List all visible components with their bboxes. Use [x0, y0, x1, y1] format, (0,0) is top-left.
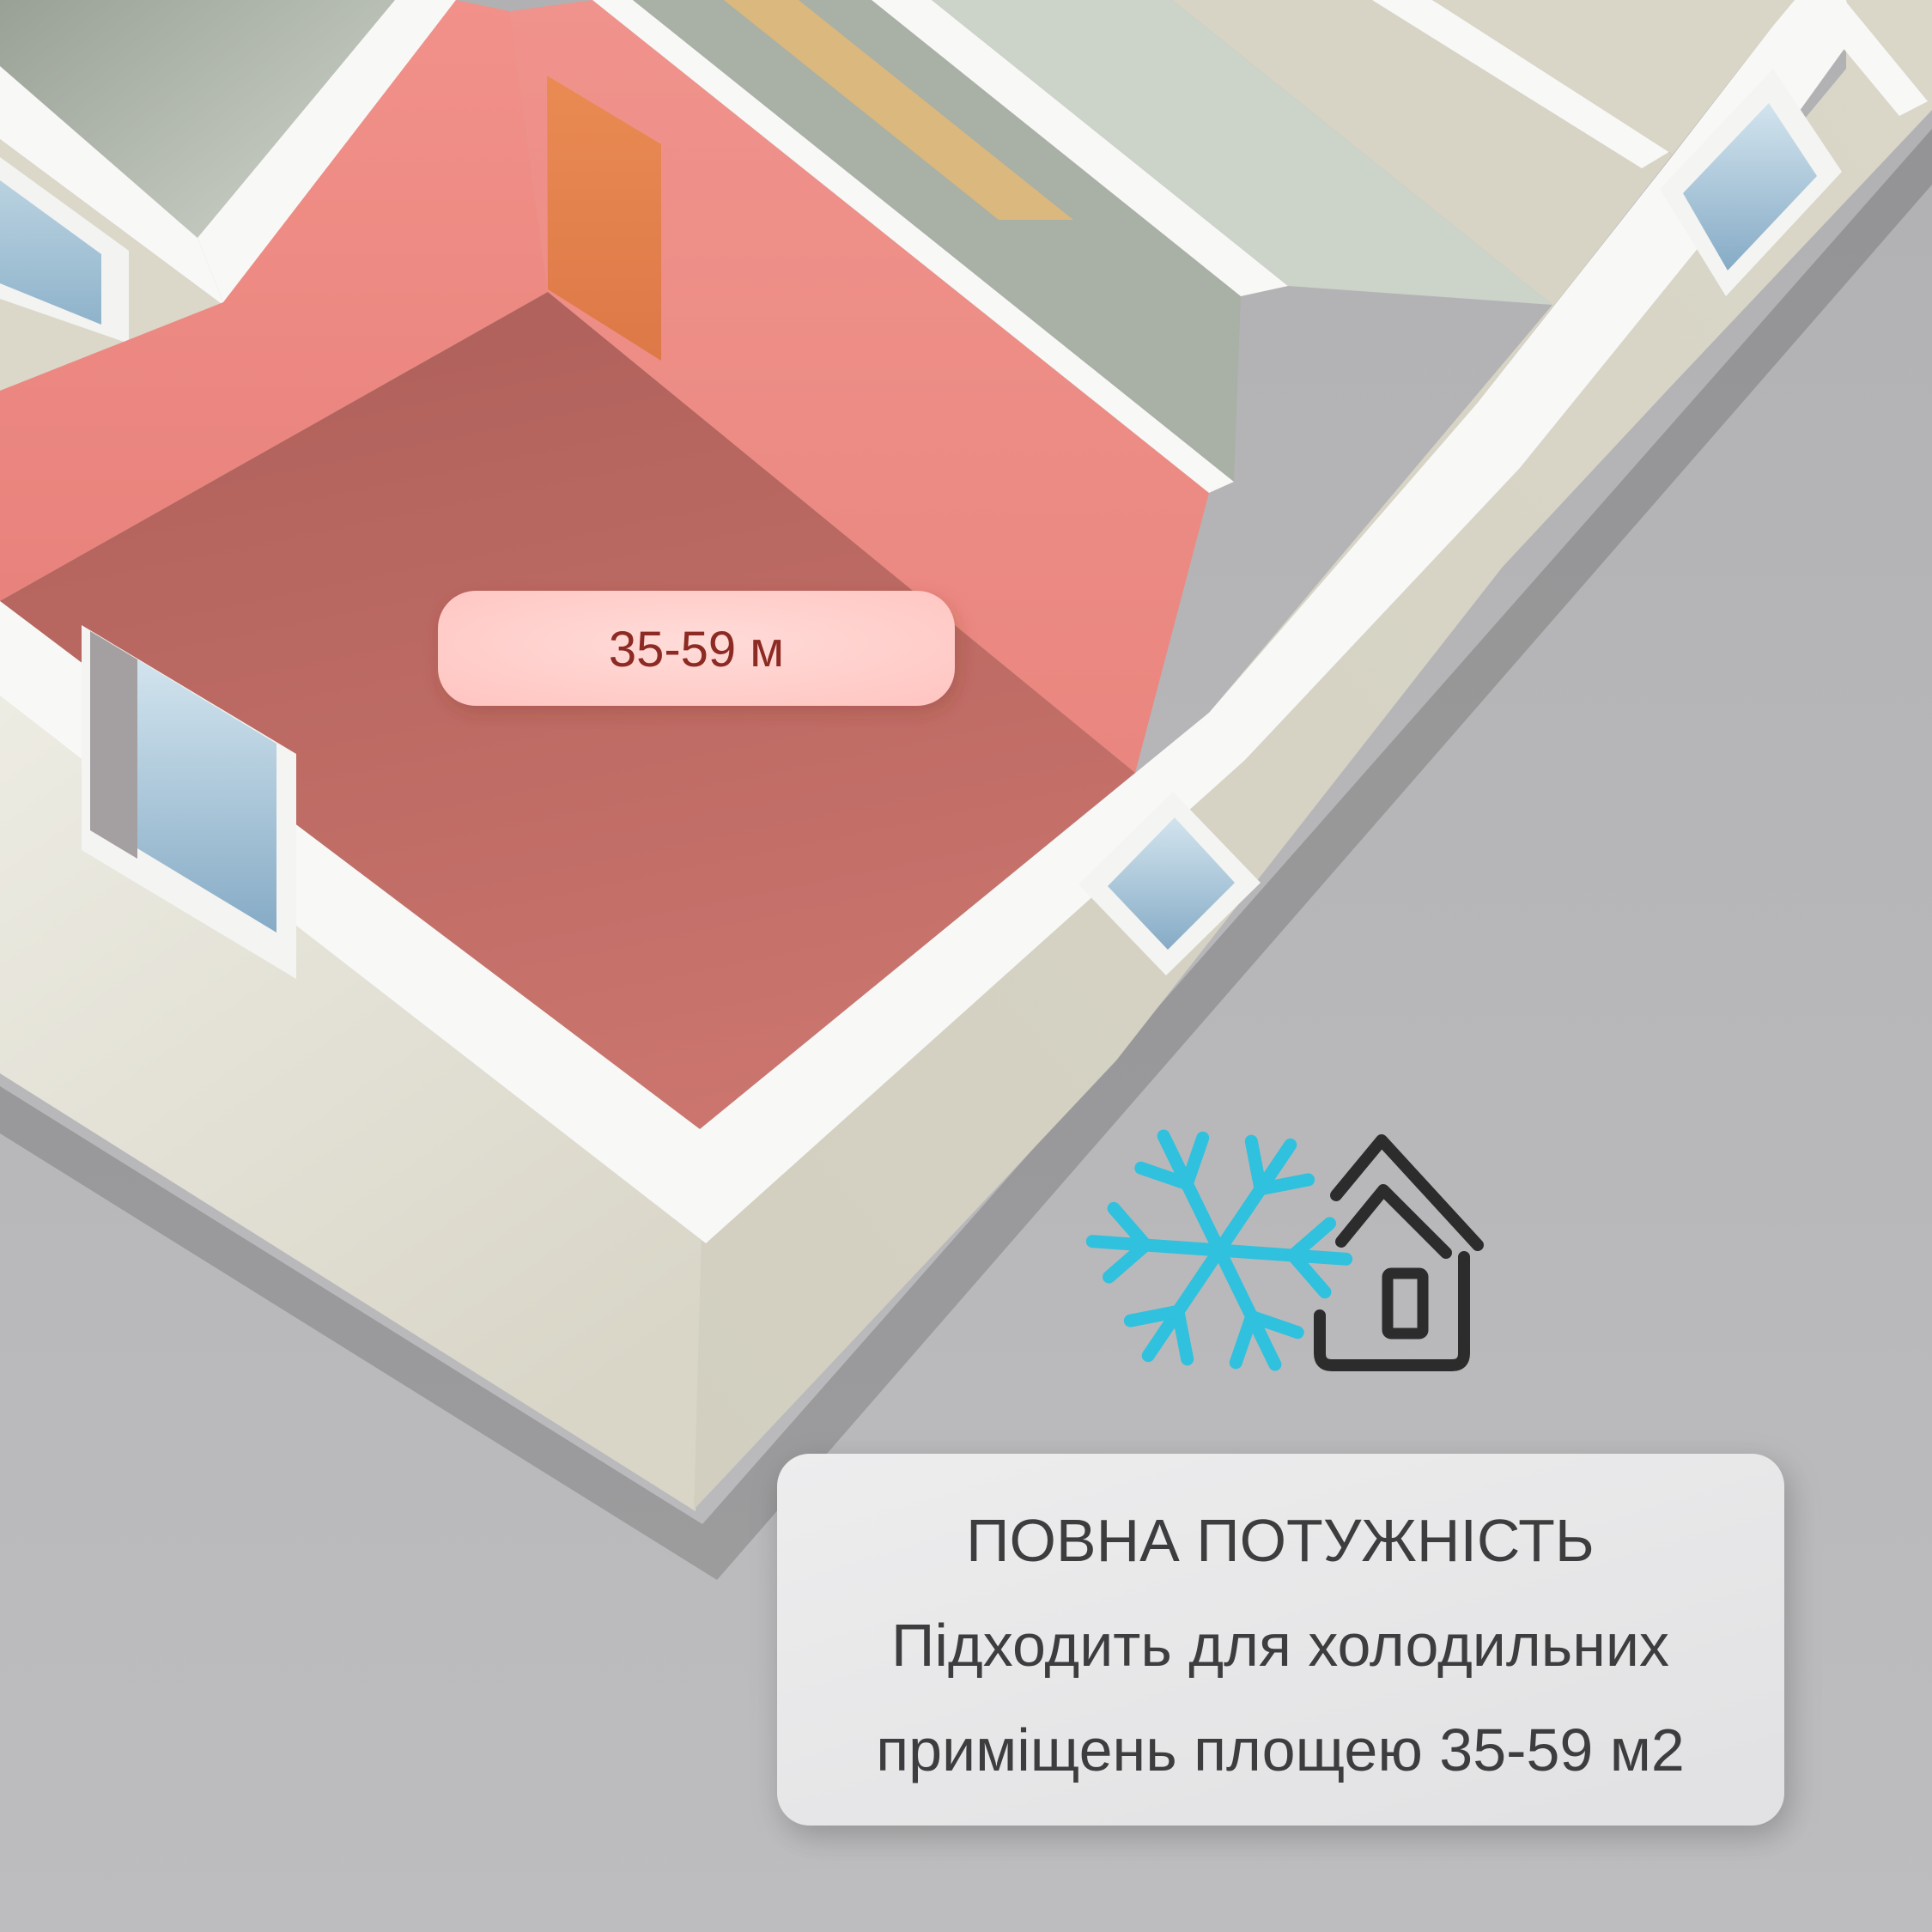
promo-slide: 35-59 м ПОВНА ПОТУЖНІСТЬ Підходить для х… — [0, 0, 1932, 1932]
floorplan-3d-scene: 35-59 м ПОВНА ПОТУЖНІСТЬ Підходить для х… — [0, 0, 1932, 1932]
info-card-title: ПОВНА ПОТУЖНІСТЬ — [966, 1507, 1595, 1574]
info-card: ПОВНА ПОТУЖНІСТЬ Підходить для холодильн… — [777, 1454, 1784, 1826]
room-area-label: 35-59 м — [609, 622, 784, 677]
info-card-line2: Підходить для холодильних — [891, 1612, 1669, 1679]
info-card-line3: приміщень площею 35-59 м2 — [876, 1716, 1685, 1783]
window-left-jamb — [90, 631, 137, 859]
room-area-badge[interactable]: 35-59 м — [438, 591, 955, 706]
